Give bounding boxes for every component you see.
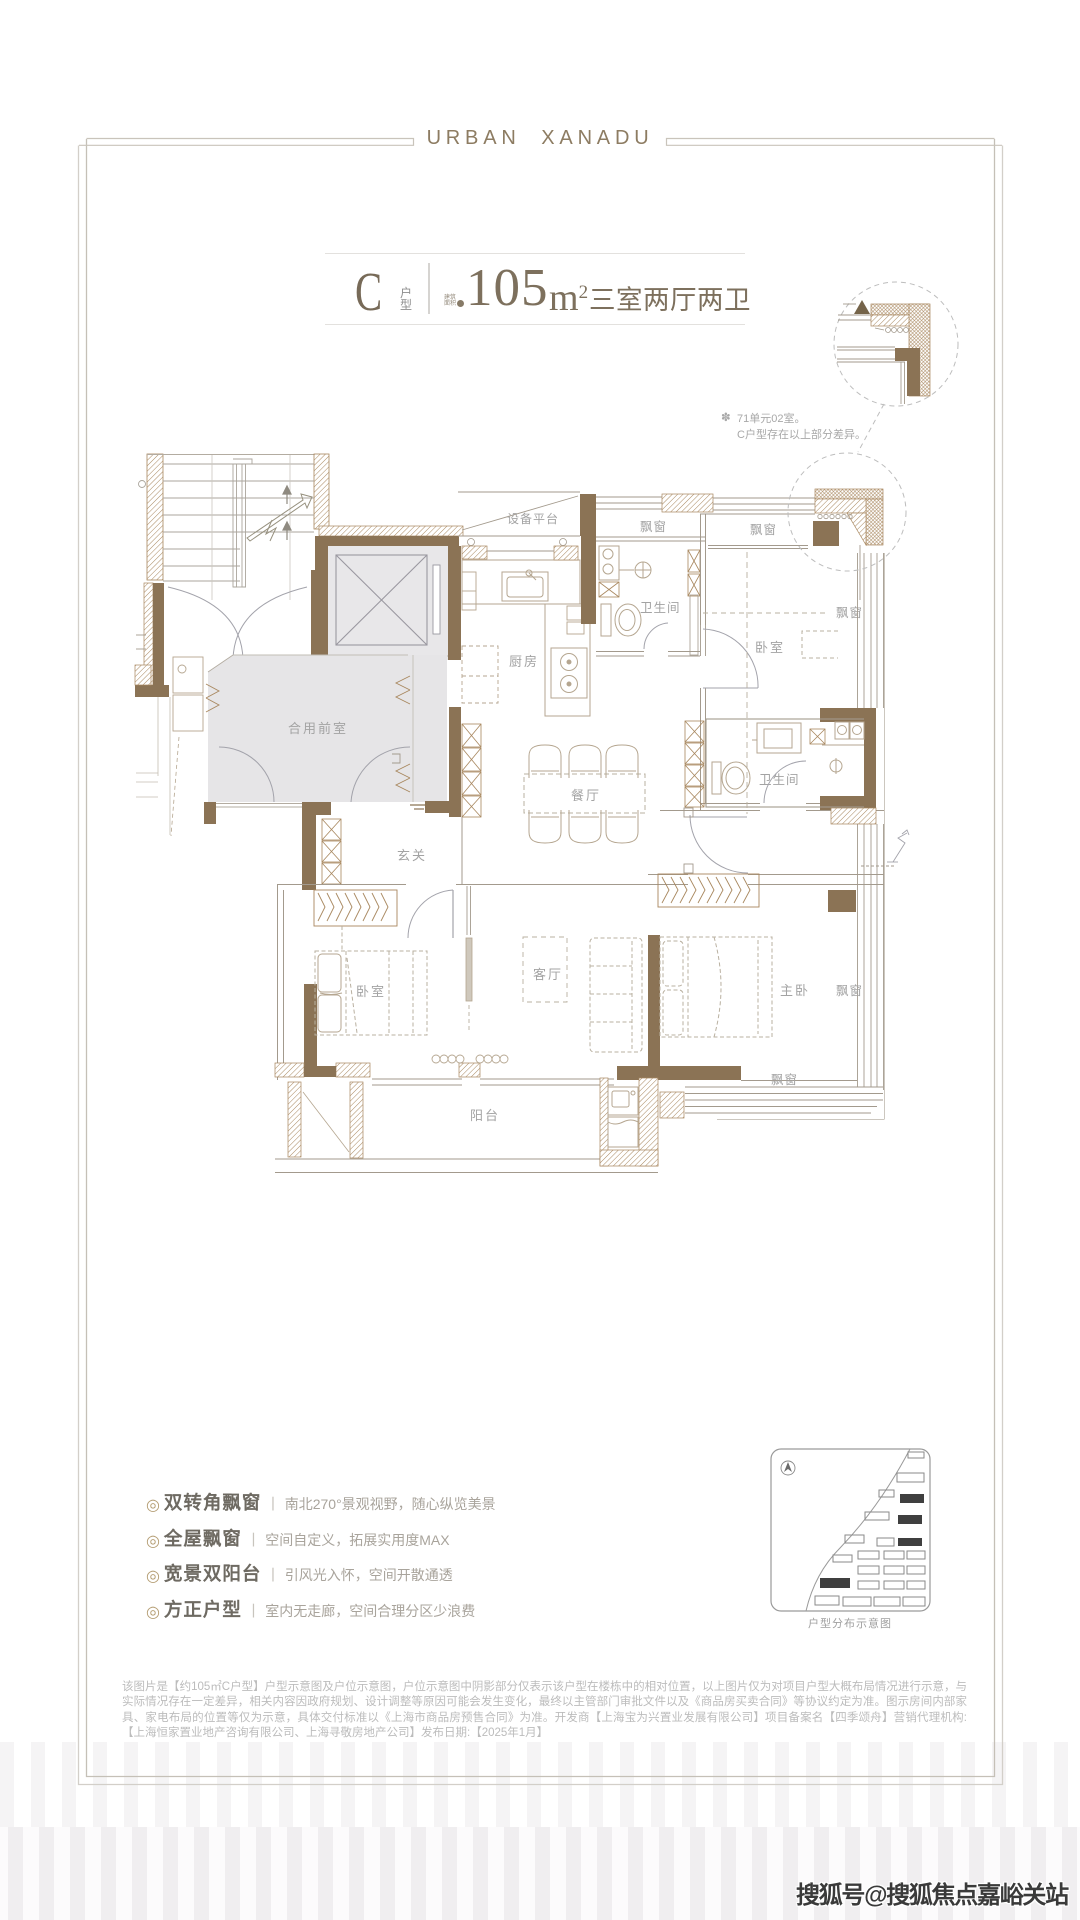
svg-text:飘窗: 飘窗 (836, 606, 863, 620)
svg-text:厨房: 厨房 (509, 654, 539, 669)
svg-text:合用前室: 合用前室 (288, 721, 348, 736)
svg-text:飘窗: 飘窗 (836, 984, 863, 998)
svg-text:卫生间: 卫生间 (640, 601, 681, 615)
svg-text:玄关: 玄关 (397, 848, 427, 863)
svg-text:餐厅: 餐厅 (571, 788, 601, 803)
svg-text:客厅: 客厅 (533, 967, 563, 982)
svg-text:飘窗: 飘窗 (750, 523, 777, 537)
svg-text:设备平台: 设备平台 (507, 511, 559, 526)
svg-text:卧室: 卧室 (356, 984, 386, 999)
svg-text:卧室: 卧室 (755, 640, 785, 655)
svg-text:飘窗: 飘窗 (771, 1073, 798, 1087)
svg-text:主卧: 主卧 (780, 983, 810, 998)
svg-text:飘窗: 飘窗 (640, 520, 667, 534)
svg-text:卫生间: 卫生间 (759, 773, 800, 787)
svg-text:阳台: 阳台 (470, 1108, 500, 1123)
svg-text:户型分布示意图: 户型分布示意图 (808, 1616, 892, 1630)
